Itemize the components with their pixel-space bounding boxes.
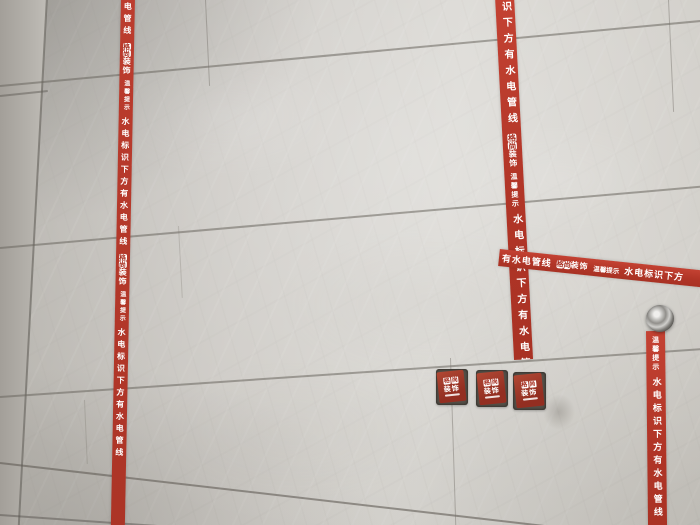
- brand-logo-box-2: 尚: [491, 378, 499, 386]
- warning-tape-right-upper: 识下方有水电管线格尚装饰温馨提示水电标识下方有水电管线: [495, 0, 533, 360]
- outlet-hole-3: 格 尚 装饰: [513, 372, 546, 410]
- warning-tape-left: 电管线格尚装饰温馨提示水电标识下方有水电管线格尚装饰温馨提示水电标识下方有水电管…: [111, 0, 135, 525]
- tape-warning-text: 水电标识下方有水电管线: [508, 213, 532, 360]
- outlet-hole-1: 格 尚 装饰: [436, 369, 468, 405]
- grout-joint-v2: [668, 0, 674, 112]
- tape-warning-text: 有水电管线: [501, 251, 552, 269]
- brand-logo: 格尚装饰: [506, 134, 519, 169]
- tape-warning-text: 温馨提示: [121, 80, 131, 112]
- warning-tape-right-lower: 温馨提示水电标识下方有水电管线格尚装饰温馨提示水电: [646, 331, 667, 525]
- grout-line-h4: [0, 462, 576, 525]
- grout-line-h3: [0, 348, 700, 398]
- cover-sub-mark: [522, 397, 537, 401]
- grout-line-h2: [0, 185, 700, 249]
- tape-warning-text: 识下方有水电管线: [497, 1, 519, 130]
- tape-warning-text: 温馨提示: [593, 262, 620, 275]
- cover-sub-mark: [445, 393, 460, 397]
- tape-warning-text: 水电标识下方有水电管线: [114, 328, 128, 460]
- tape-warning-text: 水电标识下方: [624, 264, 685, 283]
- cover-sub-mark: [485, 395, 500, 399]
- tape-warning-text: 水电标识下方有水电管线: [118, 117, 132, 249]
- grout-joint-v3: [178, 226, 183, 298]
- tape-warning-text: 温馨提示: [117, 291, 127, 323]
- brand-logo-box-1: 格: [521, 381, 529, 389]
- tape-warning-text: 温馨提示: [651, 336, 661, 372]
- water-pipe-cap: [646, 305, 674, 332]
- brand-logo-box-2: 尚: [529, 380, 537, 388]
- outlet-cover-3: 格 尚 装饰: [513, 373, 544, 409]
- brand-logo-box-1: 格: [483, 379, 491, 387]
- grout-line-h5: [0, 514, 299, 525]
- outlet-cover-2: 格 尚 装饰: [476, 371, 506, 406]
- brand-suffix-label: 装饰: [508, 150, 518, 168]
- grout-joint-v5: [84, 400, 88, 464]
- grout-joint-v1: [205, 0, 210, 86]
- wall-photo: 电管线格尚装饰温馨提示水电标识下方有水电管线格尚装饰温馨提示水电标识下方有水电管…: [0, 0, 700, 525]
- tape-warning-text: 温馨提示: [509, 172, 521, 208]
- brand-suffix-label: 装饰: [118, 268, 127, 286]
- tape-warning-text: 水电标识下方有水电管线: [649, 377, 663, 520]
- brand-suffix-label: 装饰: [122, 57, 131, 75]
- brand-logo-box-2: 尚: [451, 376, 459, 384]
- brand-logo: 格尚装饰: [121, 43, 133, 75]
- outlet-hole-2: 格 尚 装饰: [476, 370, 508, 407]
- brand-suffix-label: 装饰: [570, 261, 589, 272]
- brand-suffix-label: 装饰: [483, 386, 500, 396]
- cement-smudge: [543, 394, 575, 430]
- brand-logo: 格尚装饰: [117, 254, 129, 286]
- brand-logo-box-1: 格: [443, 377, 451, 385]
- outlet-cover-1: 格 尚 装饰: [436, 370, 466, 404]
- grout-line-h1: [0, 19, 700, 86]
- tape-warning-text: 电管线: [122, 2, 134, 38]
- brand-logo: 格尚装饰: [556, 258, 589, 272]
